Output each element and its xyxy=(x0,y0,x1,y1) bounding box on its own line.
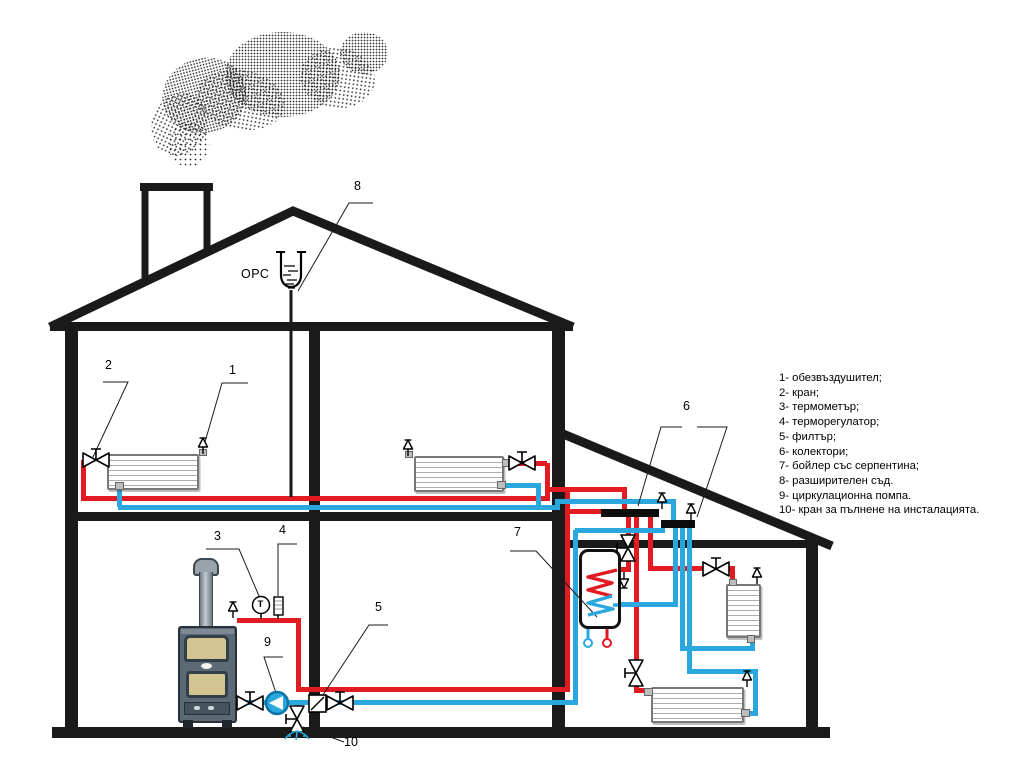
return-pipe-segment xyxy=(680,528,685,651)
return-pipe-segment xyxy=(687,528,692,674)
legend-item-10: 10- кран за пълнене на инсталацията. xyxy=(779,503,979,518)
radiator-annex-upper xyxy=(726,584,761,638)
supply-collector xyxy=(601,509,659,517)
return-pipe-segment xyxy=(618,602,676,607)
leader-line-9 xyxy=(264,657,283,693)
air-vent-icon xyxy=(687,504,696,520)
radiator-upper-right xyxy=(414,456,504,492)
leader-line-6a xyxy=(638,427,682,506)
return-pipe-segment xyxy=(573,530,578,705)
stove-ash-drawer xyxy=(184,702,230,715)
supply-pipe-segment xyxy=(546,487,627,492)
callout-10: 10 xyxy=(344,736,358,749)
callout-4: 4 xyxy=(279,524,286,537)
legend-item-3: 3- термометър; xyxy=(779,400,979,415)
expansion-vessel xyxy=(276,252,306,497)
return-collector xyxy=(661,520,695,528)
radiator-stub xyxy=(741,709,750,717)
air-vent-icon xyxy=(753,568,762,584)
return-pipe-segment xyxy=(749,711,757,716)
supply-pipe-segment xyxy=(566,509,603,514)
chimney xyxy=(140,184,213,281)
stove-drawer-knob xyxy=(208,706,214,710)
annex-right-wall xyxy=(806,536,818,738)
supply-main-upper xyxy=(83,496,548,501)
stove-drawer-knob xyxy=(194,706,200,710)
legend-item-8: 8- разширителен съд. xyxy=(779,474,979,489)
callout-7: 7 xyxy=(514,526,521,539)
stove-top-plate xyxy=(181,629,234,634)
return-pipe-segment xyxy=(753,669,758,716)
second-floor-slab xyxy=(65,512,565,521)
legend-item-7: 7- бойлер със серпентина; xyxy=(779,459,979,474)
legend-item-9: 9- циркулационна помпа. xyxy=(779,489,979,504)
stove-upper-door xyxy=(184,635,229,662)
leader-line-4 xyxy=(278,544,297,596)
stove-handle xyxy=(201,663,212,669)
legend-item-5: 5- филтър; xyxy=(779,430,979,445)
return-main-ground xyxy=(237,700,578,705)
fill-valve-branch xyxy=(295,703,300,710)
radiator-stub xyxy=(405,451,413,458)
legend: 1- обезвъздушител; 2- кран; 3- термометъ… xyxy=(779,371,979,518)
return-pipe-segment xyxy=(536,483,541,510)
supply-pipe-segment xyxy=(626,514,631,538)
radiator-stub xyxy=(747,635,755,643)
return-pipe-segment xyxy=(671,501,676,522)
supply-pipe-segment xyxy=(81,460,86,501)
smoke-cloud xyxy=(340,32,388,74)
ground-slab xyxy=(52,727,830,738)
callout-2: 2 xyxy=(105,359,112,372)
smoke-cloud xyxy=(168,122,210,167)
callout-5: 5 xyxy=(375,601,382,614)
radiator-annex-lower xyxy=(651,687,744,723)
callout-6: 6 xyxy=(683,400,690,413)
radiator-stub xyxy=(497,481,506,489)
main-right-wall xyxy=(552,325,565,738)
return-pipe-segment xyxy=(687,669,758,674)
supply-riser xyxy=(565,487,570,692)
thermoregulator-icon xyxy=(274,597,283,619)
callout-3: 3 xyxy=(214,530,221,543)
return-pipe-segment xyxy=(575,528,665,533)
supply-pipe-segment xyxy=(296,618,301,692)
stove-lower-door xyxy=(186,671,228,698)
middle-wall xyxy=(309,330,320,738)
thermometer-letter: Т xyxy=(258,599,264,610)
legend-item-2: 2- кран; xyxy=(779,386,979,401)
leader-line-8 xyxy=(298,203,373,291)
air-vent-icon xyxy=(229,602,238,618)
main-roof xyxy=(50,211,573,327)
stove-flue-pipe xyxy=(199,572,213,628)
heating-system-diagram: 1 2 3 4 5 6 7 8 9 10 ОРС Т 1- обезвъздуш… xyxy=(0,0,1029,767)
left-wall xyxy=(65,325,78,738)
radiator-stub xyxy=(199,449,207,456)
supply-pipe-segment xyxy=(296,687,570,692)
valve-icon xyxy=(83,449,109,467)
radiator-stub xyxy=(729,579,737,586)
radiator-stub xyxy=(115,482,124,490)
leader-line-2 xyxy=(93,382,128,457)
radiator-stub xyxy=(502,459,511,467)
supply-pipe-segment xyxy=(237,618,301,623)
boiler-with-coil xyxy=(579,549,621,629)
leader-line-6b xyxy=(697,427,727,517)
return-pipe-segment xyxy=(673,528,678,607)
legend-item-4: 4- терморегулатор; xyxy=(779,415,979,430)
return-pipe-segment xyxy=(117,487,122,507)
leader-line-1 xyxy=(203,383,248,449)
expansion-vessel-label: ОРС xyxy=(241,267,269,281)
supply-pipe-segment xyxy=(648,514,653,571)
return-pipe-segment xyxy=(556,499,676,504)
legend-item-6: 6- колектори; xyxy=(779,445,979,460)
return-main-upper xyxy=(118,505,560,510)
callout-9: 9 xyxy=(264,636,271,649)
stove-leg xyxy=(222,720,232,728)
supply-pipe-segment xyxy=(634,514,639,662)
valve-icon xyxy=(625,660,643,686)
radiator-stub xyxy=(644,688,653,696)
callout-1: 1 xyxy=(229,364,236,377)
stove-leg xyxy=(183,720,193,728)
callout-8: 8 xyxy=(354,180,361,193)
legend-item-1: 1- обезвъздушител; xyxy=(779,371,979,386)
return-pipe-segment xyxy=(501,483,541,488)
